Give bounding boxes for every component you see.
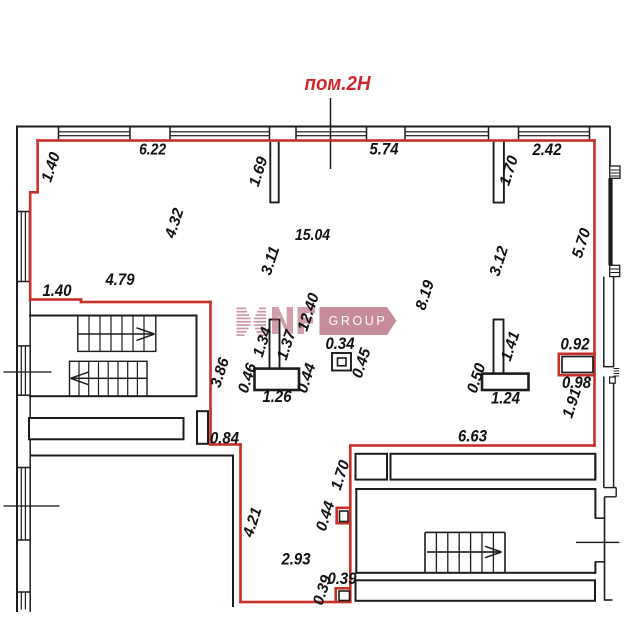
svg-text:12.40: 12.40 bbox=[295, 291, 323, 334]
svg-text:5.70: 5.70 bbox=[569, 226, 595, 260]
svg-text:0.44: 0.44 bbox=[294, 361, 320, 395]
svg-text:4.21: 4.21 bbox=[240, 505, 266, 540]
svg-text:1.70: 1.70 bbox=[497, 153, 523, 187]
svg-text:GROUP: GROUP bbox=[329, 314, 388, 328]
svg-text:пом.2Н: пом.2Н bbox=[305, 72, 372, 95]
svg-text:4.79: 4.79 bbox=[105, 271, 136, 289]
svg-text:1.69: 1.69 bbox=[246, 154, 272, 188]
svg-text:0.84: 0.84 bbox=[210, 430, 239, 448]
svg-text:0.34: 0.34 bbox=[326, 335, 355, 353]
svg-text:3.12: 3.12 bbox=[487, 244, 513, 278]
svg-text:1.40: 1.40 bbox=[39, 150, 65, 184]
svg-text:6.63: 6.63 bbox=[458, 428, 487, 446]
svg-text:15.04: 15.04 bbox=[295, 227, 330, 244]
svg-text:6.22: 6.22 bbox=[139, 142, 166, 159]
svg-text:8.19: 8.19 bbox=[413, 278, 439, 312]
svg-text:1.40: 1.40 bbox=[43, 282, 73, 300]
svg-text:5.74: 5.74 bbox=[370, 141, 399, 159]
svg-text:2.93: 2.93 bbox=[281, 551, 311, 569]
svg-text:0.44: 0.44 bbox=[313, 499, 339, 533]
svg-text:1.26: 1.26 bbox=[263, 388, 293, 406]
svg-text:2.42: 2.42 bbox=[532, 141, 562, 159]
svg-text:3.11: 3.11 bbox=[258, 244, 283, 277]
svg-text:4.32: 4.32 bbox=[162, 206, 188, 241]
svg-text:1.24: 1.24 bbox=[491, 390, 520, 408]
svg-text:0.92: 0.92 bbox=[561, 336, 590, 354]
